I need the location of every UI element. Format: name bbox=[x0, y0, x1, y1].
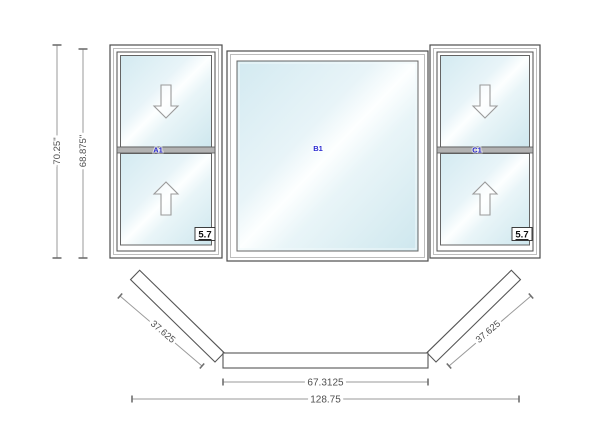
egress-value: 5.7 bbox=[515, 230, 528, 241]
dimension-center-width: 67.3125 bbox=[223, 378, 428, 389]
dimension-overall-width: 128.75 bbox=[132, 395, 519, 406]
dim-overall-height-label: 70.25" bbox=[52, 137, 63, 164]
window-unit-a1[interactable]: A1 5.7 bbox=[110, 45, 222, 258]
dim-left-flanker-label: 37.625 bbox=[148, 318, 177, 345]
egress-badge: 5.7 bbox=[512, 228, 532, 241]
drawing-canvas: 70.25" 68.875" A1 5.7 bbox=[0, 0, 603, 442]
dim-center-width-label: 67.3125 bbox=[307, 378, 344, 389]
unit-label-b1: B1 bbox=[313, 144, 323, 153]
glazing bbox=[237, 61, 418, 251]
window-unit-c1[interactable]: C1 5.7 bbox=[430, 45, 540, 258]
egress-badge: 5.7 bbox=[195, 228, 215, 241]
plan-center-unit bbox=[223, 353, 428, 368]
window-drawing-svg: 70.25" 68.875" A1 5.7 bbox=[0, 0, 603, 442]
plan-right-flanker bbox=[427, 270, 521, 362]
elevation-view: 70.25" 68.875" A1 5.7 bbox=[52, 45, 540, 261]
unit-label-a1: A1 bbox=[153, 146, 163, 155]
egress-value: 5.7 bbox=[198, 230, 211, 241]
dimension-frame-height: 68.875" bbox=[78, 49, 89, 258]
plan-panel bbox=[131, 270, 225, 362]
check-rail bbox=[437, 147, 533, 153]
dim-frame-height-label: 68.875" bbox=[78, 135, 89, 167]
dimension-overall-height: 70.25" bbox=[52, 45, 63, 258]
plan-left-flanker bbox=[131, 270, 225, 362]
dim-right-flanker-label: 37.625 bbox=[474, 318, 503, 345]
plan-view: 37.625 37.625 67.3125 128.75 bbox=[118, 270, 533, 405]
check-rail bbox=[117, 147, 215, 153]
plan-panel bbox=[427, 270, 521, 362]
window-unit-b1[interactable]: B1 bbox=[227, 51, 428, 261]
dim-overall-width-label: 128.75 bbox=[310, 395, 341, 406]
unit-label-c1: C1 bbox=[472, 146, 482, 155]
